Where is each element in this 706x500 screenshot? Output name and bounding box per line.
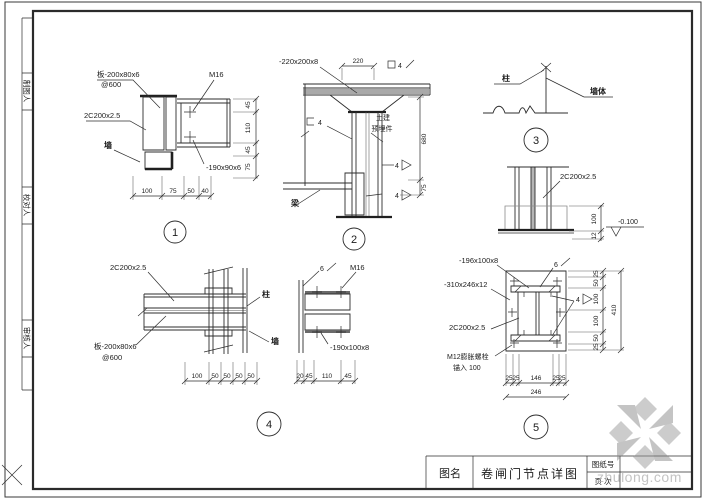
dim-label: 146	[531, 375, 542, 382]
dim-label: 680	[421, 133, 428, 144]
weld-size: 4	[318, 120, 322, 127]
detail-2: 220 -220x200x8 4 4 土建 预埋件 4 4 梁	[279, 57, 430, 250]
detail-3: 柱 墙体 3	[483, 63, 613, 152]
detail-1-leaders	[86, 80, 214, 164]
weld-size: 4	[398, 63, 402, 70]
dim-label: 25	[593, 343, 600, 351]
dim-label: 50	[247, 373, 255, 380]
margin-role-labels: 制图人 校对人 审核人	[22, 80, 32, 350]
detail-number: 2	[351, 234, 357, 246]
dim-label: 100	[591, 213, 598, 224]
weld-size: 4	[576, 297, 580, 304]
dim-label: 75	[245, 163, 252, 171]
plate-spacing-label: @600	[101, 80, 121, 89]
dim-label: 12	[591, 232, 598, 240]
label-right: 墙体	[590, 86, 607, 96]
margin-label-drafter: 制图人	[22, 80, 32, 103]
member-label-bottom: 墙	[271, 336, 279, 346]
note-line2: 预埋件	[372, 124, 393, 133]
dim-total-label: 246	[531, 389, 542, 396]
dim-label: 100	[593, 315, 600, 326]
detail-number: 4	[266, 419, 272, 431]
watermark-logo	[609, 397, 681, 469]
plate-side-label: -310x246x12	[444, 280, 487, 289]
dim-label: 100	[192, 373, 203, 380]
detail-5: -196x100x8 6 -310x246x12 4 2C200x2.5 M12…	[444, 256, 624, 439]
detail-number: 3	[533, 135, 539, 147]
dim-label: 45	[344, 373, 352, 380]
dim-label: 100	[593, 293, 600, 304]
detail-5-dims-right: 25 50 100 100 50 25 410	[568, 268, 624, 353]
dim-label: 45	[245, 146, 252, 154]
detail-number: 1	[172, 227, 178, 239]
dim-label: 100	[142, 188, 153, 195]
detail-4-dims-bottom: 100 50 50 50 50	[182, 362, 260, 385]
detail-2-top-dim: 220	[339, 58, 377, 80]
label-left: 柱	[502, 73, 510, 83]
level-mark: -0.100	[606, 219, 644, 236]
dim-label: 20	[296, 373, 304, 380]
weld-size: 6	[320, 266, 324, 273]
dim-total-label: 410	[611, 304, 618, 315]
detail-2-dims-right: 680 75	[400, 94, 428, 198]
detail-5-linework	[506, 271, 566, 351]
dim-label: 50	[223, 373, 231, 380]
sheet-number-label: 图纸号	[592, 459, 615, 469]
cad-drawing-sheet: 制图人 校对人 审核人 板-200x80x6 @600 M16 2C200x2.…	[0, 0, 706, 500]
dim-label: 50	[593, 334, 600, 342]
weld-size: 4	[395, 193, 399, 200]
detail-4-linework	[138, 267, 247, 354]
detail-4-side-view: 6 M16 -190x100x8 20 45 110 45	[294, 263, 369, 384]
dim-label: 50	[593, 279, 600, 287]
plate-spacing-label: @600	[102, 353, 122, 362]
square-weld-symbol: 4	[388, 60, 414, 70]
fillet-weld-symbol: 6	[540, 258, 570, 287]
detail-1: 板-200x80x6 @600 M16 2C200x2.5 -190x90x6 …	[84, 69, 259, 243]
bolt-label: M16	[350, 263, 365, 272]
level-value: -0.100	[618, 219, 638, 226]
margin-label-approver: 审核人	[22, 327, 32, 350]
member-label: 墙	[104, 140, 112, 150]
u-weld-symbol: 4	[307, 118, 352, 139]
dim-label: 40	[201, 188, 209, 195]
detail-1-dims-bottom: 100 75 50 40	[130, 176, 214, 200]
channel-label: 2C200x2.5	[560, 172, 596, 181]
detail-4: 2C200x2.5 板-200x80x6 @600 柱 墙 100 50 50 …	[94, 263, 281, 436]
title-block-name-label: 图名	[439, 466, 461, 480]
detail-number: 5	[533, 422, 539, 434]
dim-label: 50	[187, 188, 195, 195]
dim-label: 110	[322, 373, 333, 380]
column-base-detail: 2C200x2.5 100 12 -0.100	[498, 167, 644, 242]
plate-label: -190x100x8	[330, 343, 369, 352]
column-base-dims: 100 12	[569, 203, 604, 242]
member-label-top: 柱	[262, 289, 270, 299]
watermark-text: zhulong.com	[597, 469, 682, 485]
fillet-weld-symbol: 6	[303, 263, 336, 286]
plate2-label: -190x90x6	[206, 163, 241, 172]
anchor-depth-label: 锚入 100	[453, 363, 481, 372]
channel-label: 2C200x2.5	[110, 263, 146, 272]
dim-label: 25	[558, 375, 566, 382]
dim-label: 50	[211, 373, 219, 380]
detail-5-dims-bottom: 25 25 146 25 25 246	[503, 354, 569, 400]
dim-label: 75	[421, 184, 428, 192]
plate-top-label: -196x100x8	[459, 256, 498, 265]
channel-label: 2C200x2.5	[84, 111, 120, 120]
weld-size: 6	[554, 262, 558, 269]
dim-label: 75	[169, 188, 177, 195]
dim-label: 25	[512, 375, 520, 382]
dim-label: 220	[353, 58, 364, 65]
margin-label-checker: 校对人	[22, 194, 32, 217]
detail-1-linework	[140, 96, 230, 169]
plate-label: -220x200x8	[279, 57, 318, 66]
plate-label: 板-200x80x6	[97, 69, 140, 79]
dim-label: 25	[593, 270, 600, 278]
plate-label: 板-200x80x6	[94, 341, 137, 351]
fillet-weld-symbol: 4	[382, 160, 411, 170]
dim-label: 45	[305, 373, 313, 380]
weld-size: 4	[395, 163, 399, 170]
dim-label: 110	[245, 122, 252, 133]
dim-label: 45	[245, 101, 252, 109]
detail-4-side-dims: 20 45 110 45	[294, 360, 358, 384]
fillet-weld-symbol: 4	[552, 294, 592, 336]
note-line1: 土建	[376, 113, 390, 122]
beam-label: 梁	[290, 198, 300, 208]
bolt-label: M16	[209, 70, 224, 79]
channel-label: 2C200x2.5	[449, 323, 485, 332]
anchor-bolt-label: M12膨胀螺栓	[447, 352, 489, 361]
dim-label: 50	[235, 373, 243, 380]
drawing-title: 卷闸门节点详图	[481, 466, 579, 481]
